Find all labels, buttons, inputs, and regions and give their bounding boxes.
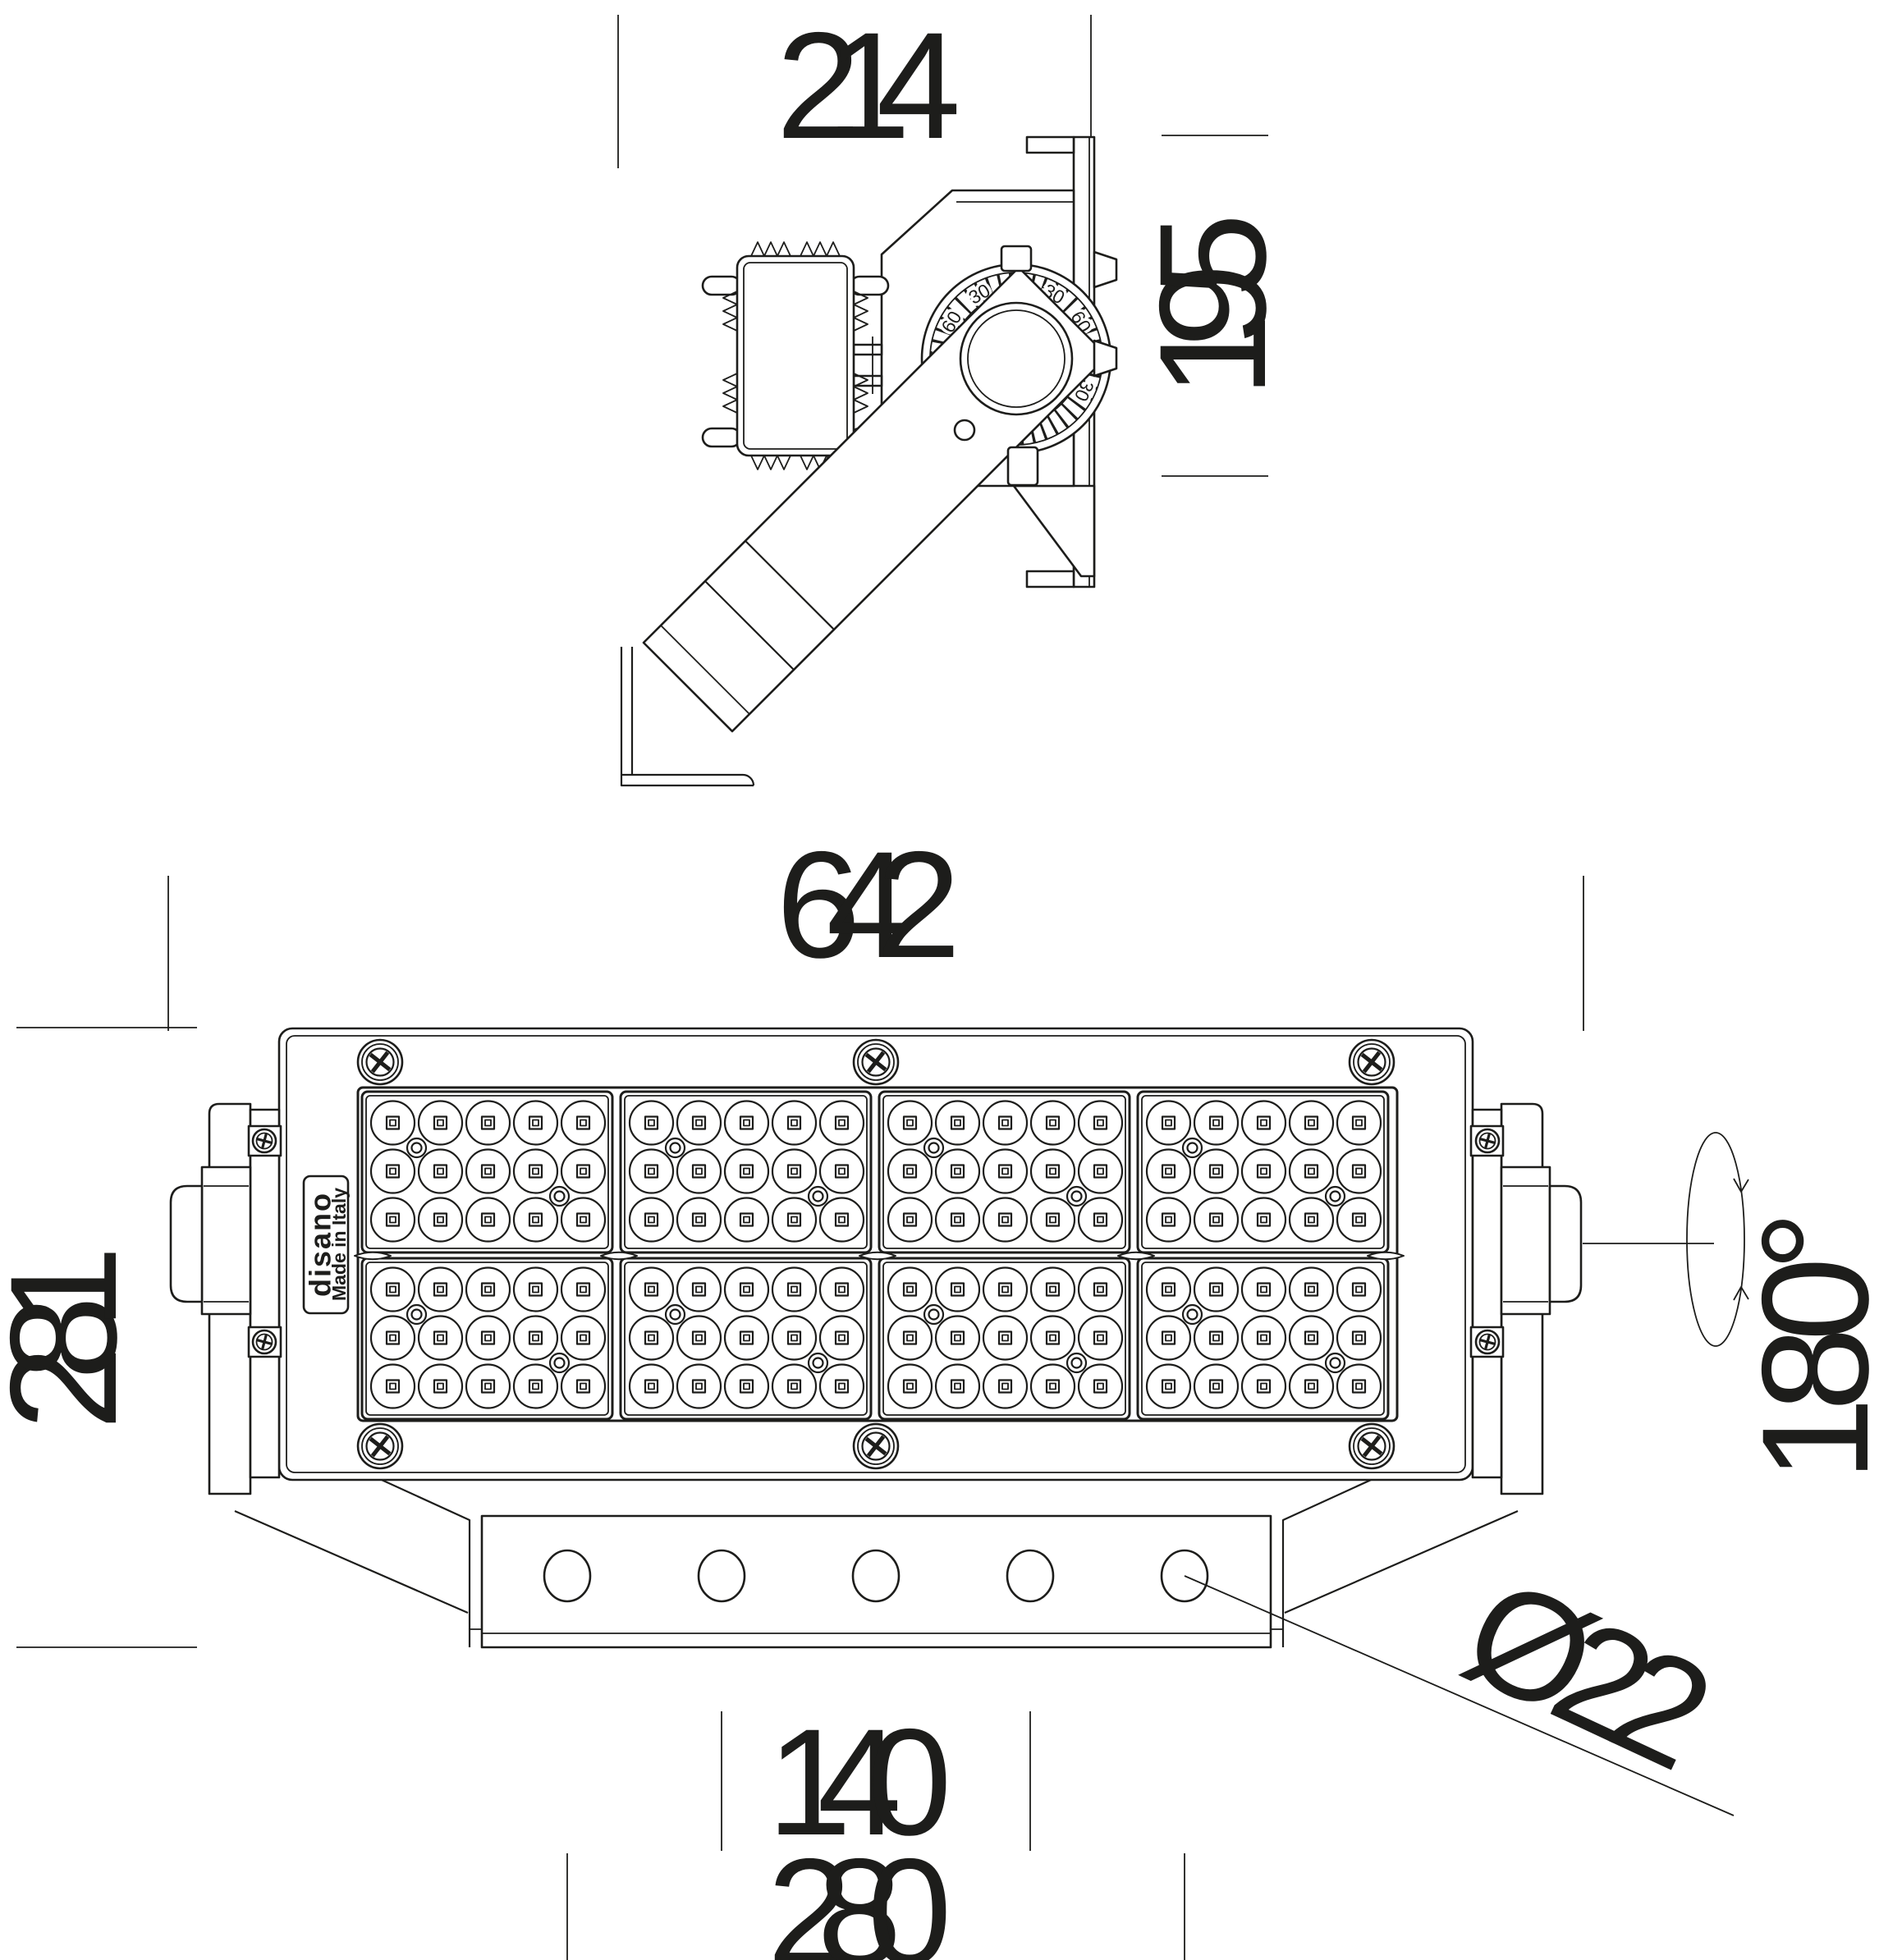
trunnion-left — [171, 1104, 281, 1494]
heatsink-fins — [751, 456, 791, 469]
dial-tab-bottom — [1008, 447, 1038, 485]
dial-tab-right — [1094, 252, 1116, 287]
side-view: 214 195 — [618, 2, 1298, 785]
dim-depth: 214 — [618, 2, 1091, 171]
dim-height-front: 281 — [0, 1028, 197, 1647]
floodlight-drawing: 214 195 — [0, 0, 1879, 1960]
heatsink-fins — [723, 291, 737, 331]
mounting-hole — [853, 1550, 899, 1601]
dim-text-195: 195 — [1129, 213, 1298, 398]
mounting-hole — [544, 1550, 590, 1601]
bracket-fin — [1014, 486, 1094, 576]
dial-tab-top — [1001, 246, 1031, 271]
brand-label: disano Made in Italy — [304, 1176, 351, 1313]
heatsink-fins — [800, 242, 840, 256]
dim-text-280: 280 — [768, 1828, 952, 1960]
mounting-hole — [1007, 1550, 1053, 1601]
dial-lens — [960, 303, 1072, 414]
pivot-boss-left — [202, 1167, 250, 1314]
pivot-knob-left — [171, 1186, 202, 1302]
pivot-boss-right — [1501, 1167, 1550, 1314]
dim-text-281: 281 — [0, 1246, 149, 1431]
arm-hole — [955, 420, 974, 440]
rotation-annotation: 180° — [1583, 1133, 1879, 1481]
front-view: 642 281 — [0, 821, 1879, 1960]
mounting-hole — [699, 1550, 745, 1601]
trunnion-strip-right — [1473, 1110, 1501, 1477]
made-in-text: Made in Italy — [328, 1188, 350, 1301]
dim-width: 642 — [168, 821, 1583, 1031]
pivot-knob-right — [1550, 1186, 1581, 1302]
plate-flange-top — [1027, 137, 1074, 153]
dim-text-dia22: Ø22 — [1441, 1546, 1736, 1802]
dim-text-642: 642 — [777, 821, 961, 990]
dim-height: 195 — [1129, 135, 1298, 476]
technical-drawing-page: 214 195 — [0, 0, 1879, 1960]
heatsink-fins — [723, 373, 737, 413]
dim-text-214: 214 — [777, 2, 961, 171]
dial-tab-right — [1094, 341, 1116, 376]
driver-pill — [703, 428, 740, 446]
plate-flange-bottom — [1027, 571, 1074, 587]
heatsink-fins — [751, 242, 791, 256]
dim-hole-span: 280 — [567, 1828, 1185, 1960]
dim-text-180: 180° — [1731, 1211, 1879, 1481]
heatsink-fins — [854, 291, 868, 331]
trunnion-right — [1471, 1104, 1581, 1494]
trunnion-strip-left — [250, 1110, 279, 1477]
